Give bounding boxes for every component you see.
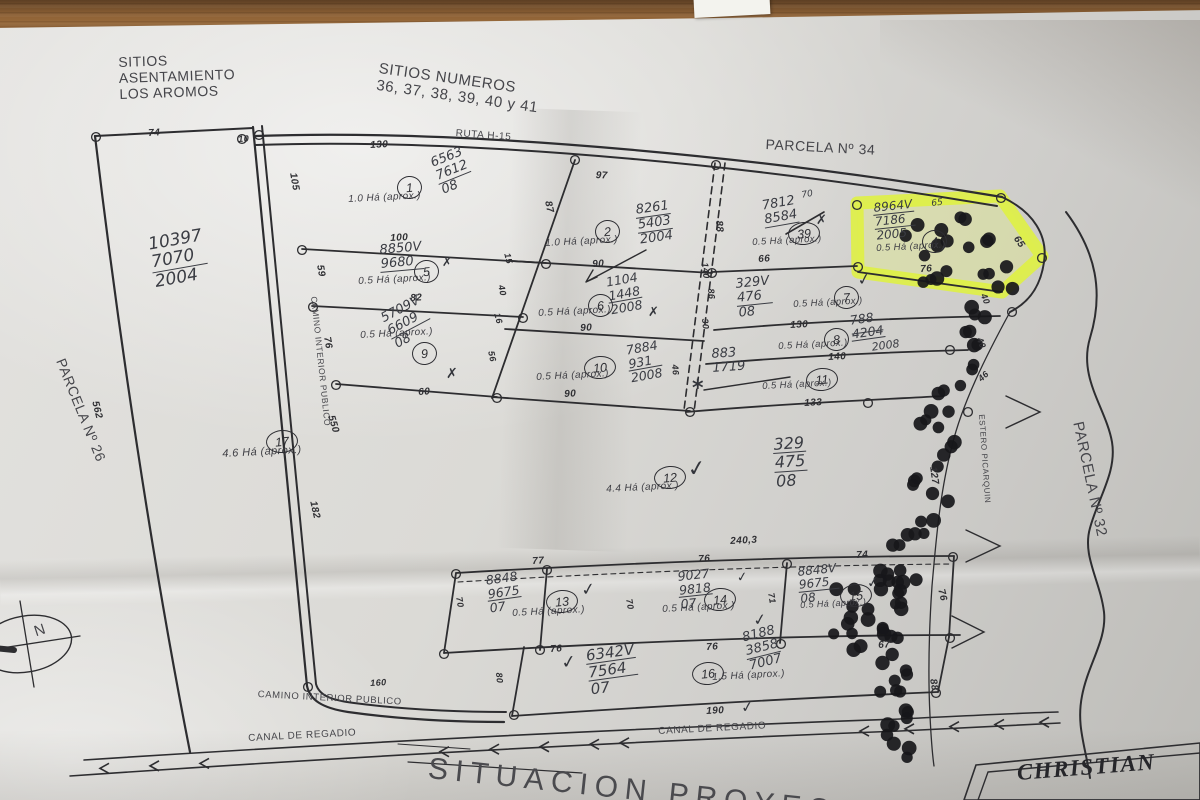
- hand-note: 6342V756407: [584, 641, 641, 698]
- hand-note: 329V47608: [734, 274, 774, 321]
- check-mark: ✓: [740, 698, 755, 717]
- dimension-label: 40: [496, 284, 509, 297]
- hand-note: 8831719: [710, 346, 747, 376]
- check-mark: ✗: [648, 306, 659, 321]
- hand-note: 110414482008: [604, 270, 645, 317]
- check-mark: ✓: [736, 570, 749, 586]
- check-mark: *: [692, 376, 704, 401]
- dimension-label: 15: [502, 252, 515, 265]
- dimension-label: 240,3: [730, 535, 758, 548]
- dimension-label: 130: [370, 139, 388, 151]
- dimension-label: 70: [454, 596, 466, 608]
- dimension-label: 90: [564, 388, 577, 400]
- dimension-label: 160: [370, 677, 387, 688]
- dimension-label: 87: [542, 200, 556, 214]
- hand-note: 8964V71862005: [872, 198, 917, 243]
- dimension-label: 67: [878, 639, 891, 651]
- sitios-header: SITIOS ASENTAMIENTO LOS AROMOS: [118, 50, 236, 102]
- hand-note: 78128584: [760, 194, 800, 229]
- dimension-label: 133: [804, 397, 822, 409]
- check-mark: ✓: [752, 610, 768, 630]
- dimension-label: 76: [920, 263, 933, 275]
- dimension-label: 10: [238, 133, 249, 144]
- dimension-label: 88: [927, 678, 940, 692]
- check-mark: ✓: [866, 574, 880, 592]
- dimension-label: 140: [700, 262, 712, 279]
- dimension-label: 46: [670, 364, 681, 376]
- dimension-label: 59: [314, 264, 327, 278]
- dimension-label: 60: [418, 386, 431, 398]
- check-mark: ✗: [446, 366, 458, 382]
- dimension-label: 76: [706, 641, 719, 653]
- dimension-label: 90: [592, 258, 605, 270]
- check-mark: ✓: [560, 652, 578, 675]
- hand-note: 8848V967508: [796, 562, 841, 606]
- dimension-label: 90: [580, 322, 593, 334]
- check-mark: ✗: [442, 256, 452, 270]
- check-mark: ✗: [816, 214, 827, 229]
- hand-note: 65: [930, 199, 944, 210]
- dimension-label: 80: [494, 672, 505, 684]
- north-arrow-icon: [0, 601, 80, 687]
- photographed-survey-plan: SITIOS ASENTAMIENTO LOS AROMOSSITIOS NUM…: [0, 0, 1200, 800]
- dimension-label: 86: [706, 288, 717, 300]
- dimension-label: 56: [486, 350, 498, 363]
- dimension-label: 74: [856, 549, 869, 561]
- dimension-label: 97: [595, 170, 608, 182]
- hand-note: 32947508: [772, 434, 808, 490]
- dimension-label: 70: [624, 598, 636, 610]
- dimension-label: 76: [321, 336, 334, 350]
- check-mark: ✓: [580, 580, 597, 601]
- dimension-label: 30: [700, 318, 711, 330]
- dimension-label: 127: [927, 466, 941, 485]
- hand-note: 8850V9680: [378, 240, 424, 273]
- dimension-label: 88: [713, 220, 725, 233]
- dimension-label: 140: [828, 351, 846, 363]
- dimension-label: 190: [706, 705, 724, 717]
- dimension-label: 16: [492, 312, 505, 325]
- hand-note: 1039770702004: [146, 226, 211, 291]
- dimension-label: 74: [148, 127, 161, 139]
- dimension-label: 71: [766, 592, 778, 604]
- hand-note: 8848967507: [484, 569, 523, 615]
- dimension-label: 66: [758, 253, 771, 265]
- hand-note: 7884204: [848, 309, 885, 341]
- hand-note: 826154032004: [634, 199, 675, 248]
- hand-note: 78849312008: [624, 338, 665, 385]
- dimension-label: 77: [532, 555, 545, 567]
- hand-note: 9027981807: [676, 566, 714, 611]
- dimension-label: 130: [790, 319, 808, 331]
- dimension-label: 76: [698, 553, 711, 565]
- check-mark: ✓: [686, 455, 708, 483]
